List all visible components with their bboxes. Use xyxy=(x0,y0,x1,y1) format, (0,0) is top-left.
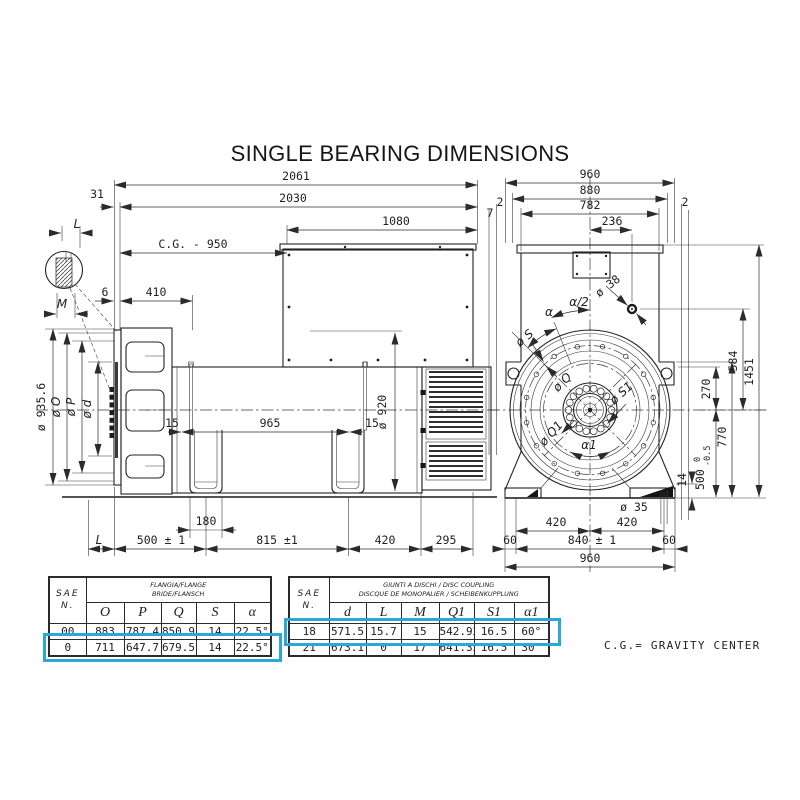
side-view: 2061 2030 31 1080 C.G. - 950 6 410 L M ø… xyxy=(34,169,498,556)
dia-920: ø 920 xyxy=(375,395,389,430)
col-alpha: α xyxy=(234,603,271,624)
dim-410: 410 xyxy=(146,285,167,299)
dim-cg-950: C.G. - 950 xyxy=(158,237,227,251)
gland-plate xyxy=(573,252,610,278)
dim-M: M xyxy=(57,297,68,311)
dim-1451: 1451 xyxy=(742,358,756,386)
dia-d: ø d xyxy=(80,399,94,419)
angle-alpha1: α1 xyxy=(581,438,597,452)
dia-S: ø S xyxy=(512,326,536,350)
dim-2-left: 2 xyxy=(497,195,504,209)
dim-L-top: L xyxy=(74,217,81,231)
dim-31: 31 xyxy=(90,187,104,201)
dim-2-right: 2 xyxy=(682,195,689,209)
dim-60-right: 60 xyxy=(662,533,676,547)
front-view: 960 880 782 2 7 2 236 ø 38 α α/2 ø S ø Q… xyxy=(487,167,768,572)
terminal-box-bolts xyxy=(288,246,469,362)
dim-960-top: 960 xyxy=(580,167,601,181)
dim-782: 782 xyxy=(580,198,601,212)
dim-295: 295 xyxy=(436,533,457,547)
dim-880: 880 xyxy=(580,183,601,197)
drawing-sheet: SINGLE BEARING DIMENSIONS xyxy=(0,0,800,800)
flange-edge xyxy=(115,362,118,458)
shaft-detail-bubble xyxy=(46,252,118,391)
col-S: S xyxy=(196,603,234,624)
dia-P: ø P xyxy=(64,397,78,417)
dim-420-right: 420 xyxy=(617,515,638,529)
coupling-table-header-row: SAE N. GIUNTI A DISCHI / DISC COUPLING D… xyxy=(289,577,549,603)
louvre-hinges xyxy=(421,390,426,468)
col-P: P xyxy=(124,603,161,624)
sae-header-cell: SAE N. xyxy=(289,577,329,624)
dim-584: 584 xyxy=(726,351,740,372)
dim-6: 6 xyxy=(102,285,109,299)
dim-770: 770 xyxy=(715,427,729,448)
gravity-center-note: C.G.= GRAVITY CENTER xyxy=(604,639,760,652)
dim-500-tol-upper: 0 xyxy=(693,457,703,462)
technical-drawing: 2061 2030 31 1080 C.G. - 950 6 410 L M ø… xyxy=(0,0,800,800)
dimension-labels-front: 960 880 782 2 7 2 236 ø 38 α α/2 ø S ø Q… xyxy=(487,167,756,565)
dim-960-bottom: 960 xyxy=(580,551,601,565)
dim-180: 180 xyxy=(196,514,217,528)
dim-1080: 1080 xyxy=(382,214,410,228)
terminal-box xyxy=(283,249,473,367)
sae-header-cell: SAE N. xyxy=(49,577,86,624)
dim-2061: 2061 xyxy=(282,169,310,183)
dia-S1: ø S1 xyxy=(606,379,636,408)
dim-270: 270 xyxy=(699,379,713,400)
sae-label: SAE xyxy=(290,589,329,601)
grille-slots xyxy=(126,342,164,478)
col-Q: Q xyxy=(161,603,196,624)
dia-35: ø 35 xyxy=(620,500,648,514)
dim-2030: 2030 xyxy=(279,191,307,205)
dim-500-base: 500 xyxy=(693,469,707,490)
dia-Q1: ø Q1 xyxy=(536,418,566,449)
dim-L-bottom: L xyxy=(96,533,103,547)
dim-500-tol-lower: -0.5 xyxy=(703,446,713,466)
louvre-slats-upper xyxy=(429,372,483,432)
sae-label: SAE xyxy=(50,589,86,601)
col-O: O xyxy=(86,603,124,624)
angle-construction xyxy=(512,286,646,456)
dim-60-left: 60 xyxy=(503,533,517,547)
flange-table-header-row: SAE N. FLANGIA/FLANGE BRIDE/FLANSCH xyxy=(49,577,271,603)
angle-alpha-half: α/2 xyxy=(569,295,589,309)
dim-840: 840 ± 1 xyxy=(568,533,617,547)
dim-420: 420 xyxy=(375,533,396,547)
dim-15-left: 15 xyxy=(165,416,179,430)
gland-plate-bolts xyxy=(576,255,607,275)
dim-14: 14 xyxy=(675,473,689,487)
flange-header-cell: FLANGIA/FLANGE BRIDE/FLANSCH xyxy=(86,577,271,603)
dim-815: 815 ±1 xyxy=(256,533,298,547)
dim-7: 7 xyxy=(487,206,494,220)
dim-965: 965 xyxy=(260,416,281,430)
n-label: N. xyxy=(290,601,329,613)
dim-420-left: 420 xyxy=(546,515,567,529)
dim-236: 236 xyxy=(602,214,623,228)
dim-500-tol: 500 0 -0.5 xyxy=(693,446,713,490)
highlight-flange-row-sae0 xyxy=(43,633,282,662)
angle-alpha: α xyxy=(545,305,553,319)
n-label: N. xyxy=(50,601,86,613)
extension-lines-side xyxy=(45,180,478,556)
foot-wedge-left xyxy=(527,489,538,497)
highlight-coupling-row-sae18 xyxy=(284,618,561,646)
dia-O: ø O xyxy=(49,397,63,419)
dia-935: ø 935.6 xyxy=(34,383,48,432)
dim-500: 500 ± 1 xyxy=(137,533,186,547)
coupling-header-cell: GIUNTI A DISCHI / DISC COUPLING DISCQUE … xyxy=(329,577,549,603)
dia-38: ø 38 xyxy=(592,272,623,300)
louvre-slats-lower xyxy=(429,446,483,476)
